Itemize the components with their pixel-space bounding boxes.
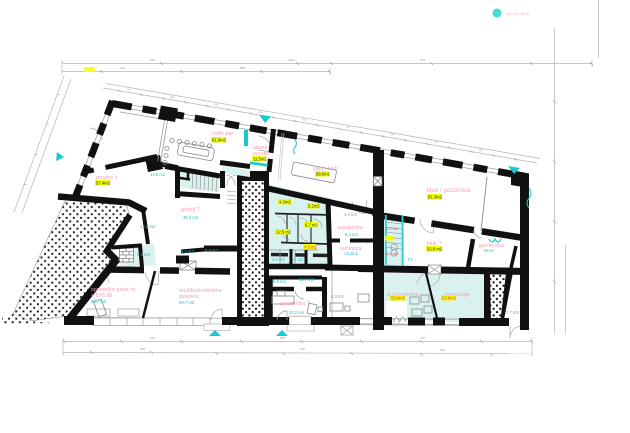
svg-text:53.8m2: 53.8m2 bbox=[442, 296, 457, 301]
svg-text:180: 180 bbox=[214, 102, 219, 107]
svg-text:880: 880 bbox=[280, 336, 285, 340]
svg-text:garderoba ?: garderoba ? bbox=[280, 301, 310, 307]
svg-text:garderoba: garderoba bbox=[338, 225, 363, 231]
svg-text:730: 730 bbox=[420, 336, 425, 340]
svg-text:12.5 m2: 12.5 m2 bbox=[276, 230, 292, 235]
svg-text:81.3m2: 81.3m2 bbox=[428, 195, 443, 200]
svg-text:8.3 m2: 8.3 m2 bbox=[137, 252, 150, 257]
svg-text:53.6m2: 53.6m2 bbox=[391, 296, 406, 301]
svg-text:3.4 m2: 3.4 m2 bbox=[272, 257, 285, 262]
svg-text:590: 590 bbox=[240, 66, 245, 70]
svg-text:220: 220 bbox=[434, 140, 439, 145]
svg-text:caffe bar: caffe bar bbox=[212, 131, 234, 137]
svg-text:izm jer jena: izm jer jena bbox=[506, 11, 530, 16]
svg-text:975: 975 bbox=[420, 58, 425, 62]
svg-text:4.3 m2: 4.3 m2 bbox=[386, 226, 399, 231]
svg-text:195: 195 bbox=[390, 132, 395, 137]
svg-text:57.4m2: 57.4m2 bbox=[96, 181, 111, 186]
svg-text:6.7 m2: 6.7 m2 bbox=[305, 223, 318, 228]
svg-text:310: 310 bbox=[120, 66, 125, 70]
svg-text:240: 240 bbox=[346, 125, 351, 130]
svg-text:20.2 m2: 20.2 m2 bbox=[289, 310, 305, 315]
svg-text:6.3 m2: 6.3 m2 bbox=[331, 294, 344, 299]
svg-text:385: 385 bbox=[440, 348, 445, 352]
svg-text:61.9m2: 61.9m2 bbox=[212, 138, 227, 143]
svg-text:355: 355 bbox=[140, 347, 145, 351]
svg-text:165: 165 bbox=[302, 117, 307, 122]
svg-text:52.8 m2: 52.8 m2 bbox=[427, 247, 443, 252]
svg-text:210: 210 bbox=[258, 110, 263, 115]
svg-text:185: 185 bbox=[478, 147, 483, 152]
svg-text:8.4 m2: 8.4 m2 bbox=[386, 251, 399, 256]
svg-text:8.4 m2: 8.4 m2 bbox=[345, 232, 358, 237]
svg-text:5.3 m2: 5.3 m2 bbox=[205, 248, 218, 253]
svg-text:99.7 m2: 99.7 m2 bbox=[179, 300, 195, 305]
svg-text:13.2m2: 13.2m2 bbox=[344, 251, 359, 256]
svg-text:4.5 m2: 4.5 m2 bbox=[304, 245, 317, 250]
svg-text:245: 245 bbox=[170, 95, 175, 100]
svg-text:7.7 m2: 7.7 m2 bbox=[506, 310, 519, 315]
svg-text:12.4 m2: 12.4 m2 bbox=[140, 224, 156, 229]
svg-text:9.5 m2: 9.5 m2 bbox=[273, 279, 286, 284]
svg-text:klub / pozornica: klub / pozornica bbox=[427, 188, 471, 194]
svg-text:1250: 1250 bbox=[288, 58, 295, 62]
svg-text:640: 640 bbox=[150, 336, 155, 340]
svg-text:5.2m2: 5.2m2 bbox=[308, 204, 320, 209]
svg-text:2 m2: 2 m2 bbox=[294, 257, 304, 262]
svg-text:gostiji ?: gostiji ? bbox=[181, 207, 200, 213]
svg-text:410: 410 bbox=[300, 347, 305, 351]
svg-text:9.4 m2: 9.4 m2 bbox=[181, 249, 194, 254]
svg-text:11.7 m2: 11.7 m2 bbox=[299, 277, 314, 282]
svg-text:99.7 m2: 99.7 m2 bbox=[91, 299, 107, 304]
svg-text:58.0m2: 58.0m2 bbox=[316, 172, 331, 177]
svg-text:120: 120 bbox=[126, 87, 131, 92]
svg-text:14.5 m2: 14.5 m2 bbox=[150, 172, 166, 177]
svg-text:P1: P1 bbox=[408, 257, 414, 262]
svg-text:4.3m2: 4.3m2 bbox=[279, 200, 291, 205]
svg-text:35.2 m2: 35.2 m2 bbox=[183, 215, 199, 220]
svg-text:425: 425 bbox=[150, 58, 155, 62]
svg-text:4.4 m2: 4.4 m2 bbox=[344, 212, 357, 217]
svg-text:11.5m2: 11.5m2 bbox=[253, 157, 267, 162]
svg-text:NrA3: NrA3 bbox=[484, 248, 494, 253]
